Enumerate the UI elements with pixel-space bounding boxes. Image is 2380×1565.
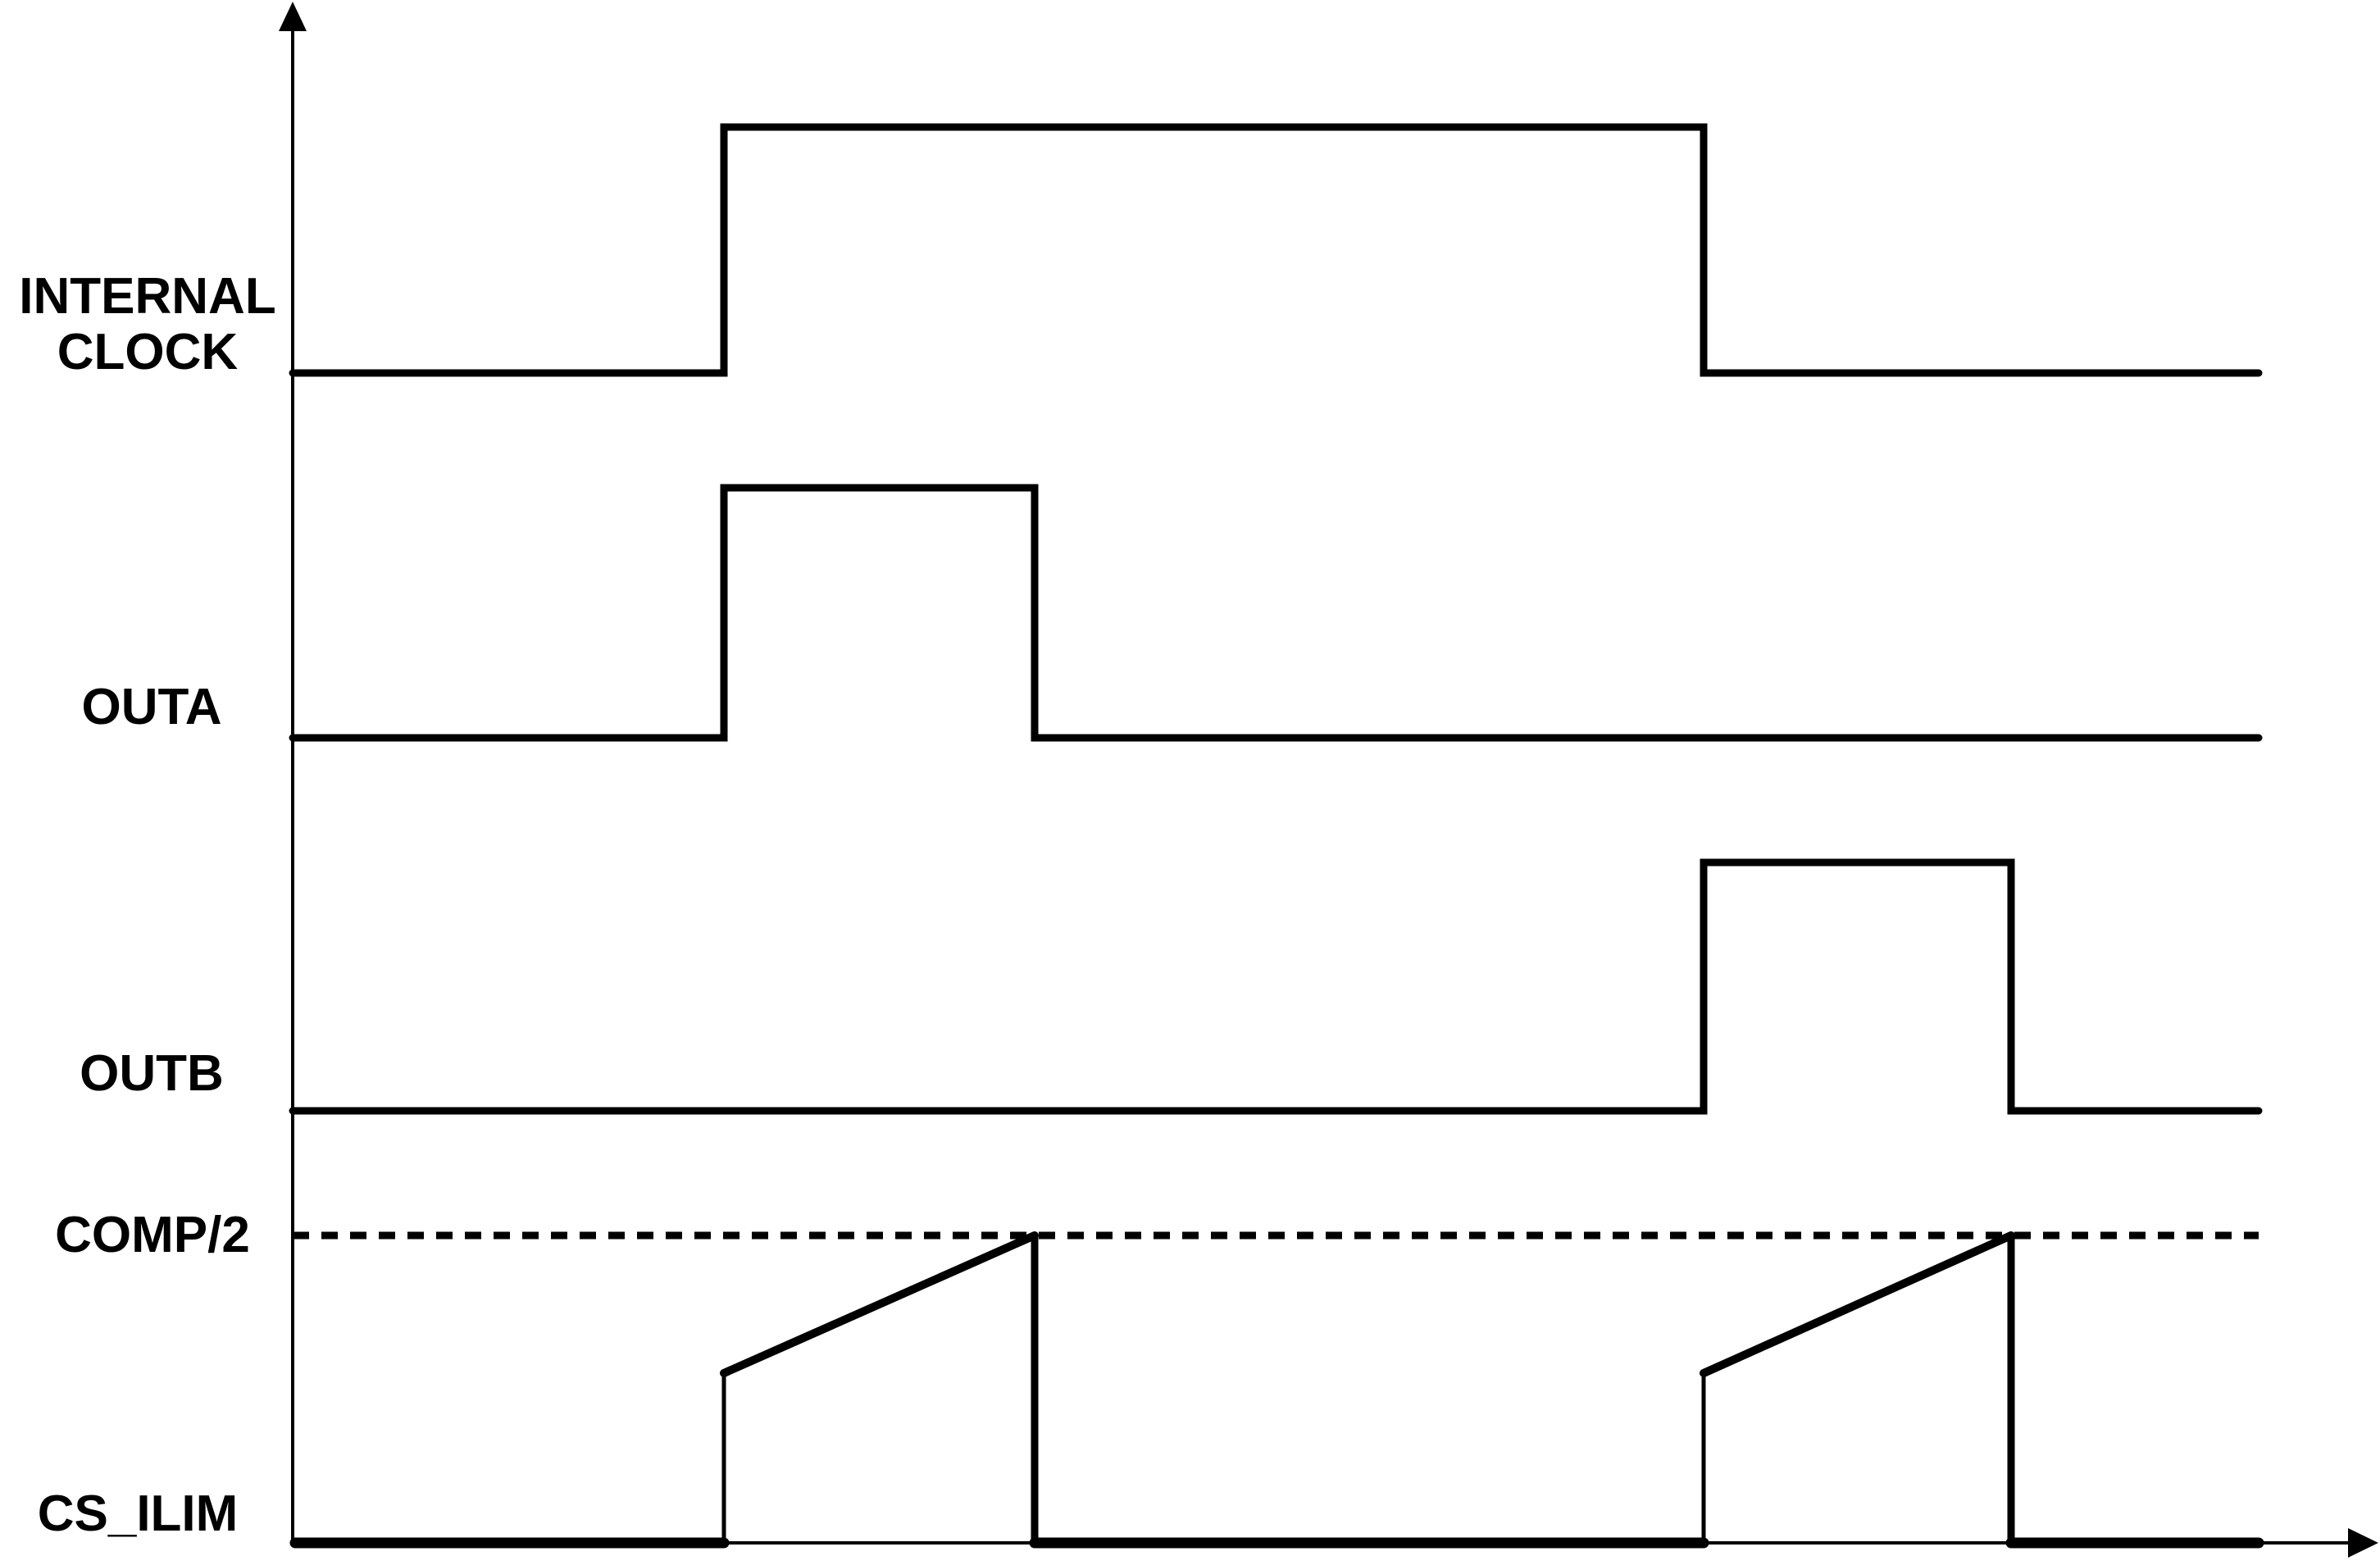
axes-layer [279,2,2378,1558]
signal-label-internal-clock-line1: INTERNAL [19,268,275,325]
labels-layer: INTERNAL CLOCK OUTA OUTB COMP/2 CS_ILIM [19,268,275,1542]
waveforms-layer [293,127,2259,1543]
signal-label-outb: OUTB [80,1045,224,1102]
waveform-internal-clock [293,127,2259,373]
signal-label-comp2: COMP/2 [55,1207,250,1263]
timing-diagram-page: INTERNAL CLOCK OUTA OUTB COMP/2 CS_ILIM [0,0,2380,1565]
signal-label-outa: OUTA [81,679,221,735]
waveform-cs-ilim-ramp2 [1704,1235,2011,1373]
x-axis-arrow-icon [2348,1528,2378,1558]
signal-label-cs-ilim: CS_ILIM [38,1485,239,1542]
timing-diagram: INTERNAL CLOCK OUTA OUTB COMP/2 CS_ILIM [0,0,2380,1565]
waveform-outb [293,862,2259,1111]
y-axis-arrow-icon [279,2,307,31]
signal-label-internal-clock-line2: CLOCK [57,324,239,380]
waveform-cs-ilim-ramp1 [724,1235,1035,1373]
waveform-outa [293,488,2259,738]
